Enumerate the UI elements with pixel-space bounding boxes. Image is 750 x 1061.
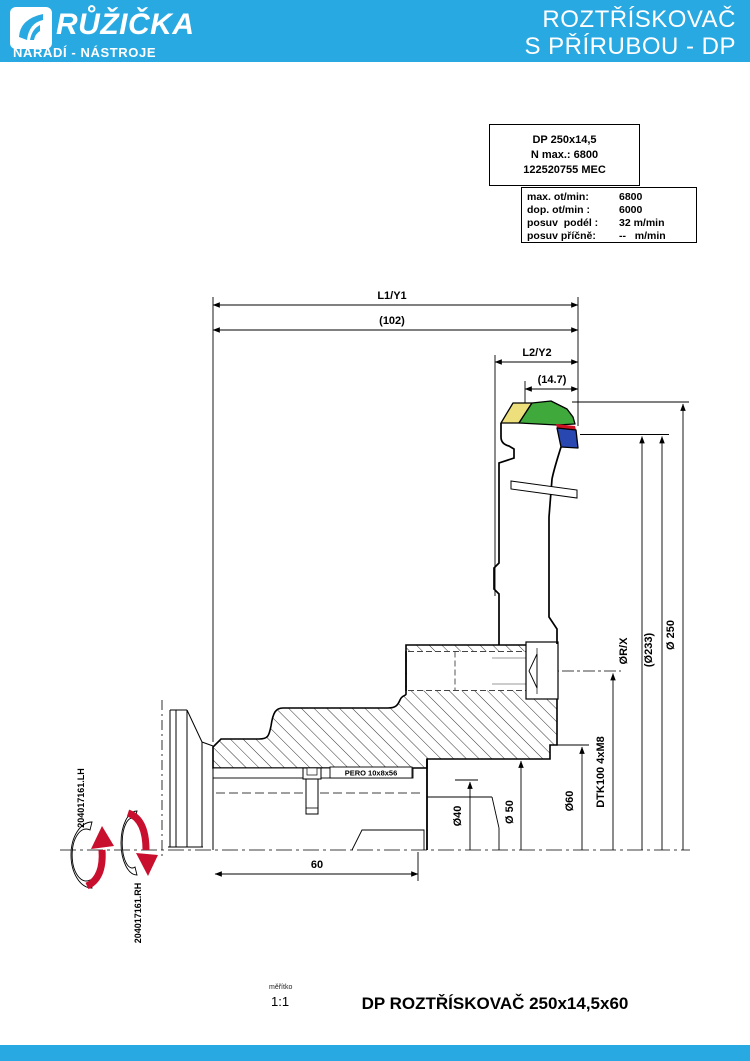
spec-row: posuv podél : 32 m/min xyxy=(522,217,696,230)
dim-dia233: (Ø233) xyxy=(643,633,655,668)
page-title-line2: S PŘÍRUBOU - DP xyxy=(524,33,736,60)
rotation-label-rh: 204017161.RH xyxy=(133,883,143,944)
spec-row: dop. ot/min : 6000 xyxy=(522,204,696,217)
chip-deflector xyxy=(511,481,577,498)
clamp-sleeve xyxy=(162,700,213,857)
spec-value: -- m/min xyxy=(619,230,666,242)
brand-name: RŮŽIČKA xyxy=(56,8,195,42)
dim-l2-value: (14.7) xyxy=(538,374,567,386)
key-label: PERO 10x8x56 xyxy=(345,769,398,778)
spec-value: 6800 xyxy=(619,191,642,203)
brand-swoosh-icon xyxy=(10,7,52,49)
cutter-head-outline xyxy=(494,423,561,645)
bolt-hole-band xyxy=(407,652,526,691)
spec-value: 32 m/min xyxy=(619,217,665,229)
dim-l1-label: L1/Y1 xyxy=(377,290,406,302)
rotation-label-lh: 204017161.LH xyxy=(76,768,86,828)
spec-row: posuv příčně: -- m/min xyxy=(522,230,696,243)
cutting-tip xyxy=(501,401,578,448)
page-title-line1: ROZTŘÍSKOVAČ xyxy=(524,6,736,33)
spec-label: dop. ot/min : xyxy=(527,204,590,216)
spec-table: max. ot/min: 6800 dop. ot/min : 6000 pos… xyxy=(521,187,697,243)
rotation-indicator-rh xyxy=(121,811,158,876)
flange-bolt xyxy=(526,642,558,699)
dim-l1-value: (102) xyxy=(379,315,405,327)
footer-bar xyxy=(0,1045,750,1061)
product-nmax: N max.: 6800 xyxy=(490,148,639,163)
brand-logo xyxy=(10,7,52,49)
dim-hub-length: 60 xyxy=(311,859,323,871)
spec-value: 6000 xyxy=(619,204,642,216)
scale-label: měřítko xyxy=(269,984,292,991)
product-model: DP 250x14,5 xyxy=(490,133,639,148)
product-card: DP 250x14,5 N max.: 6800 122520755 MEC xyxy=(489,124,640,186)
drawing-title: DP ROZTŘÍSKOVAČ 250x14,5x60 xyxy=(340,994,650,1014)
dimension-lines xyxy=(213,297,689,881)
header-bar: RŮŽIČKA NÁŘADÍ - NÁSTROJE ROZTŘÍSKOVAČ S… xyxy=(0,0,750,62)
product-code: 122520755 MEC xyxy=(490,163,639,178)
tip-segment-blue xyxy=(557,428,578,448)
set-screw xyxy=(303,768,321,814)
dim-bolt-circle: DTK100 4xM8 xyxy=(595,736,607,808)
rotation-indicator-lh xyxy=(71,822,114,888)
technical-drawing: PERO 10x8x56 xyxy=(0,260,750,960)
dim-dia50: Ø 50 xyxy=(504,800,516,824)
dim-l2-label: L2/Y2 xyxy=(522,347,551,359)
page-title: ROZTŘÍSKOVAČ S PŘÍRUBOU - DP xyxy=(524,6,736,60)
spec-label: posuv podél : xyxy=(527,217,598,229)
dim-dia-rx: ØR/X xyxy=(618,637,630,665)
datasheet-page: RŮŽIČKA NÁŘADÍ - NÁSTROJE ROZTŘÍSKOVAČ S… xyxy=(0,0,750,1061)
dim-dia250: Ø 250 xyxy=(665,620,677,650)
dim-dia40: Ø40 xyxy=(452,806,464,827)
spec-row: max. ot/min: 6800 xyxy=(522,191,696,204)
scale-value: 1:1 xyxy=(271,994,289,1009)
brand-subtitle: NÁŘADÍ - NÁSTROJE xyxy=(13,45,156,60)
dim-dia60: Ø60 xyxy=(564,791,576,812)
spec-label: max. ot/min: xyxy=(527,191,589,203)
spec-label: posuv příčně: xyxy=(527,230,596,242)
